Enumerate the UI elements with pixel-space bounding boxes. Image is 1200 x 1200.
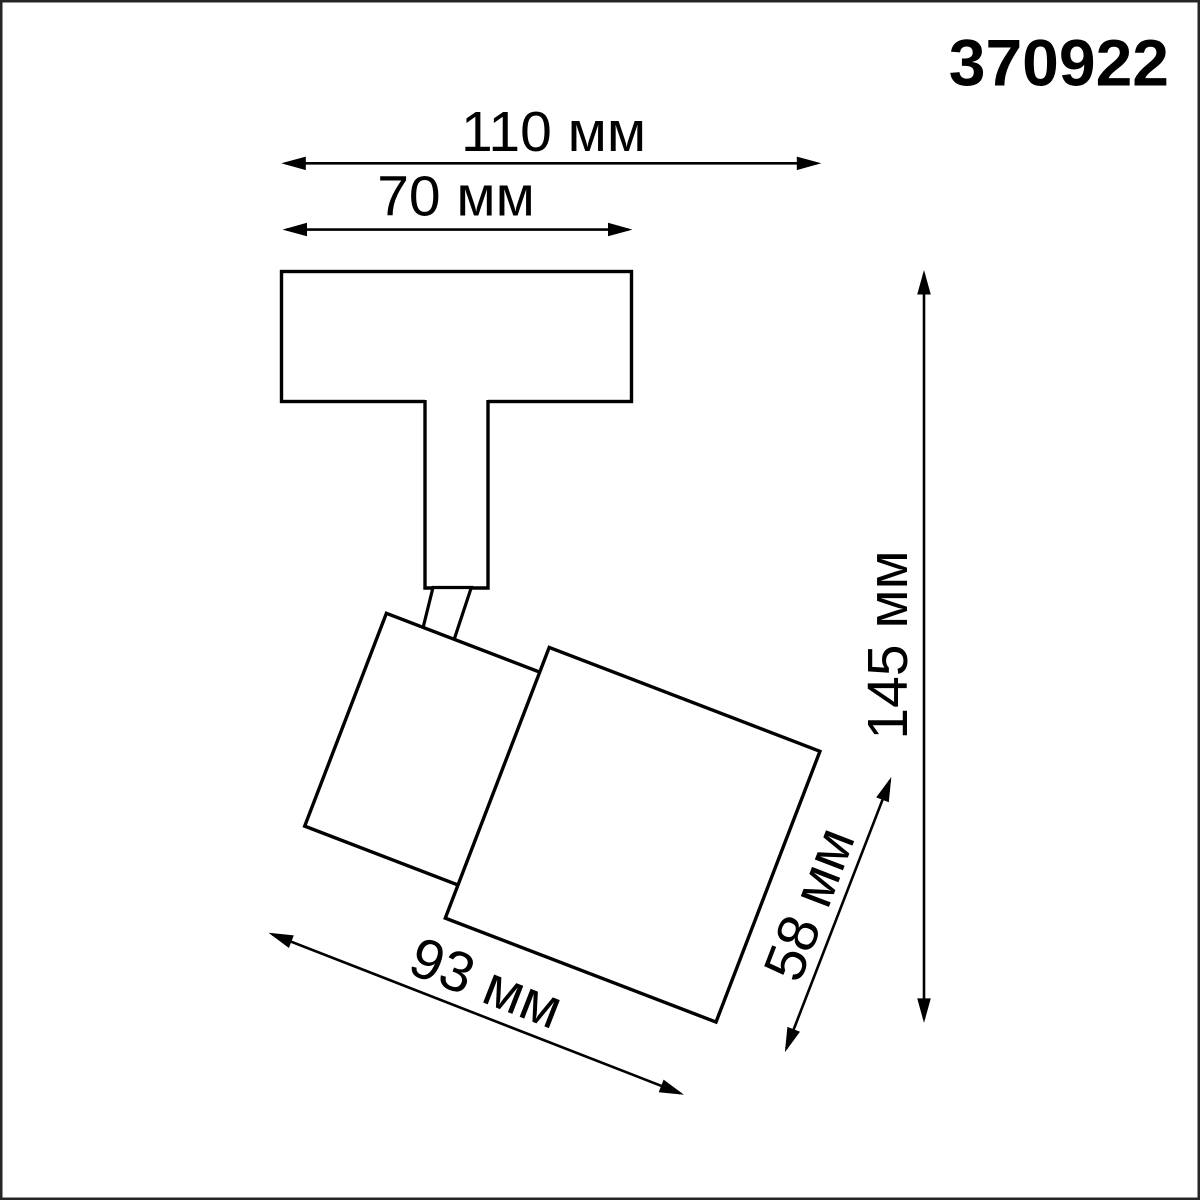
svg-text:145 мм: 145 мм: [856, 550, 920, 739]
svg-text:70 мм: 70 мм: [377, 165, 535, 229]
svg-text:110 мм: 110 мм: [461, 100, 646, 164]
svg-text:370922: 370922: [949, 26, 1169, 100]
